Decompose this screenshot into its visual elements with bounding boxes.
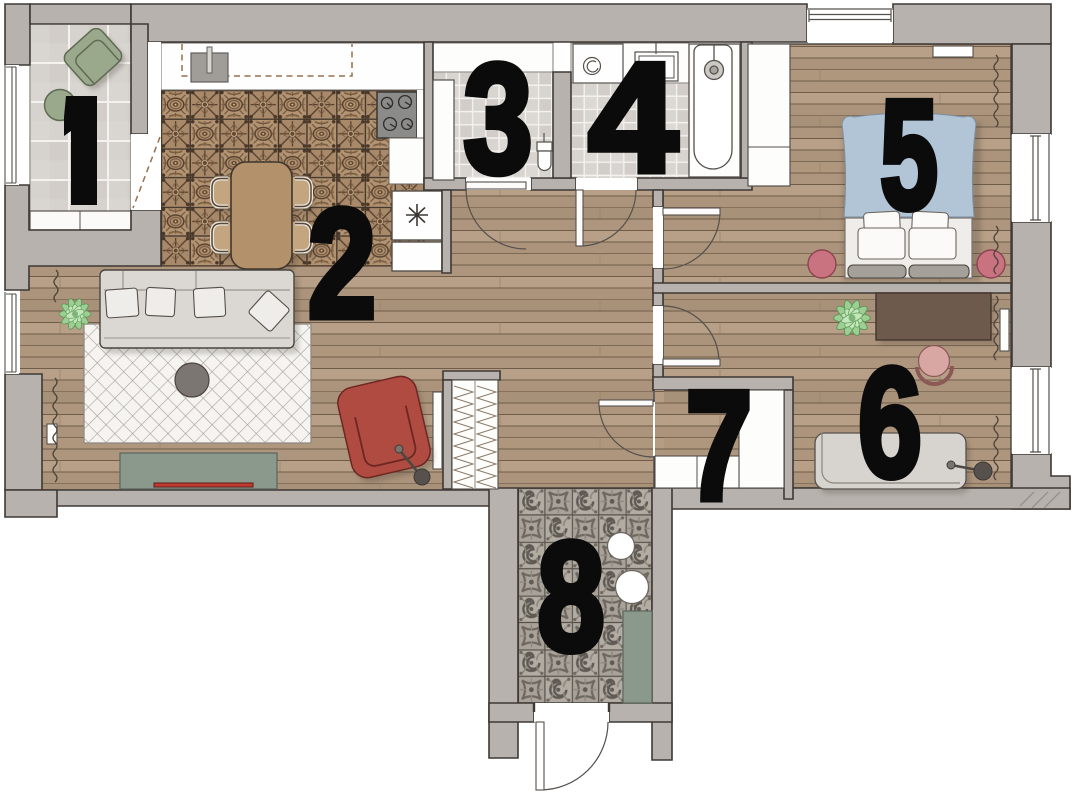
svg-text:8: 8 xyxy=(537,511,604,684)
svg-text:3: 3 xyxy=(464,32,533,205)
svg-text:7: 7 xyxy=(686,360,752,533)
svg-text:4: 4 xyxy=(589,32,678,204)
svg-text:6: 6 xyxy=(858,336,922,509)
svg-text:2: 2 xyxy=(308,177,376,350)
svg-text:5: 5 xyxy=(880,68,938,241)
